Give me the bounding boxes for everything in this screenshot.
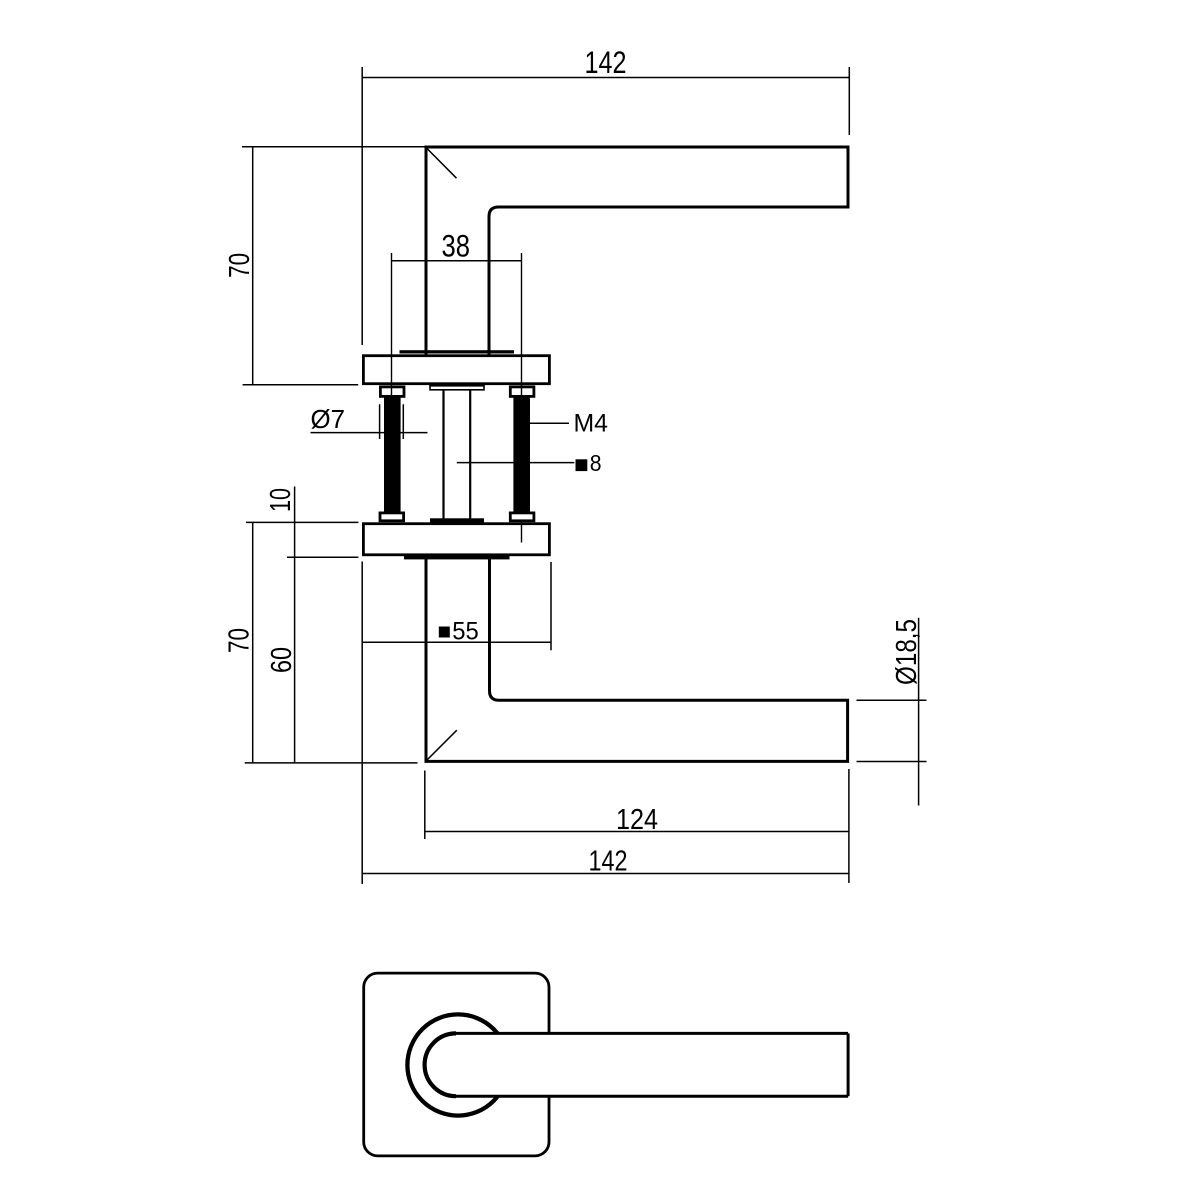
svg-text:70: 70 xyxy=(224,253,256,278)
svg-text:70: 70 xyxy=(224,628,256,653)
svg-text:60: 60 xyxy=(266,647,298,673)
svg-text:8: 8 xyxy=(590,450,602,476)
svg-text:124: 124 xyxy=(616,804,658,836)
svg-text:55: 55 xyxy=(452,617,479,645)
svg-text:38: 38 xyxy=(442,228,471,264)
svg-text:Ø18,5: Ø18,5 xyxy=(891,619,923,685)
svg-text:M4: M4 xyxy=(574,409,609,437)
svg-text:142: 142 xyxy=(585,44,627,80)
svg-text:142: 142 xyxy=(589,846,628,878)
svg-text:10: 10 xyxy=(265,488,297,512)
svg-text:Ø7: Ø7 xyxy=(311,404,346,434)
